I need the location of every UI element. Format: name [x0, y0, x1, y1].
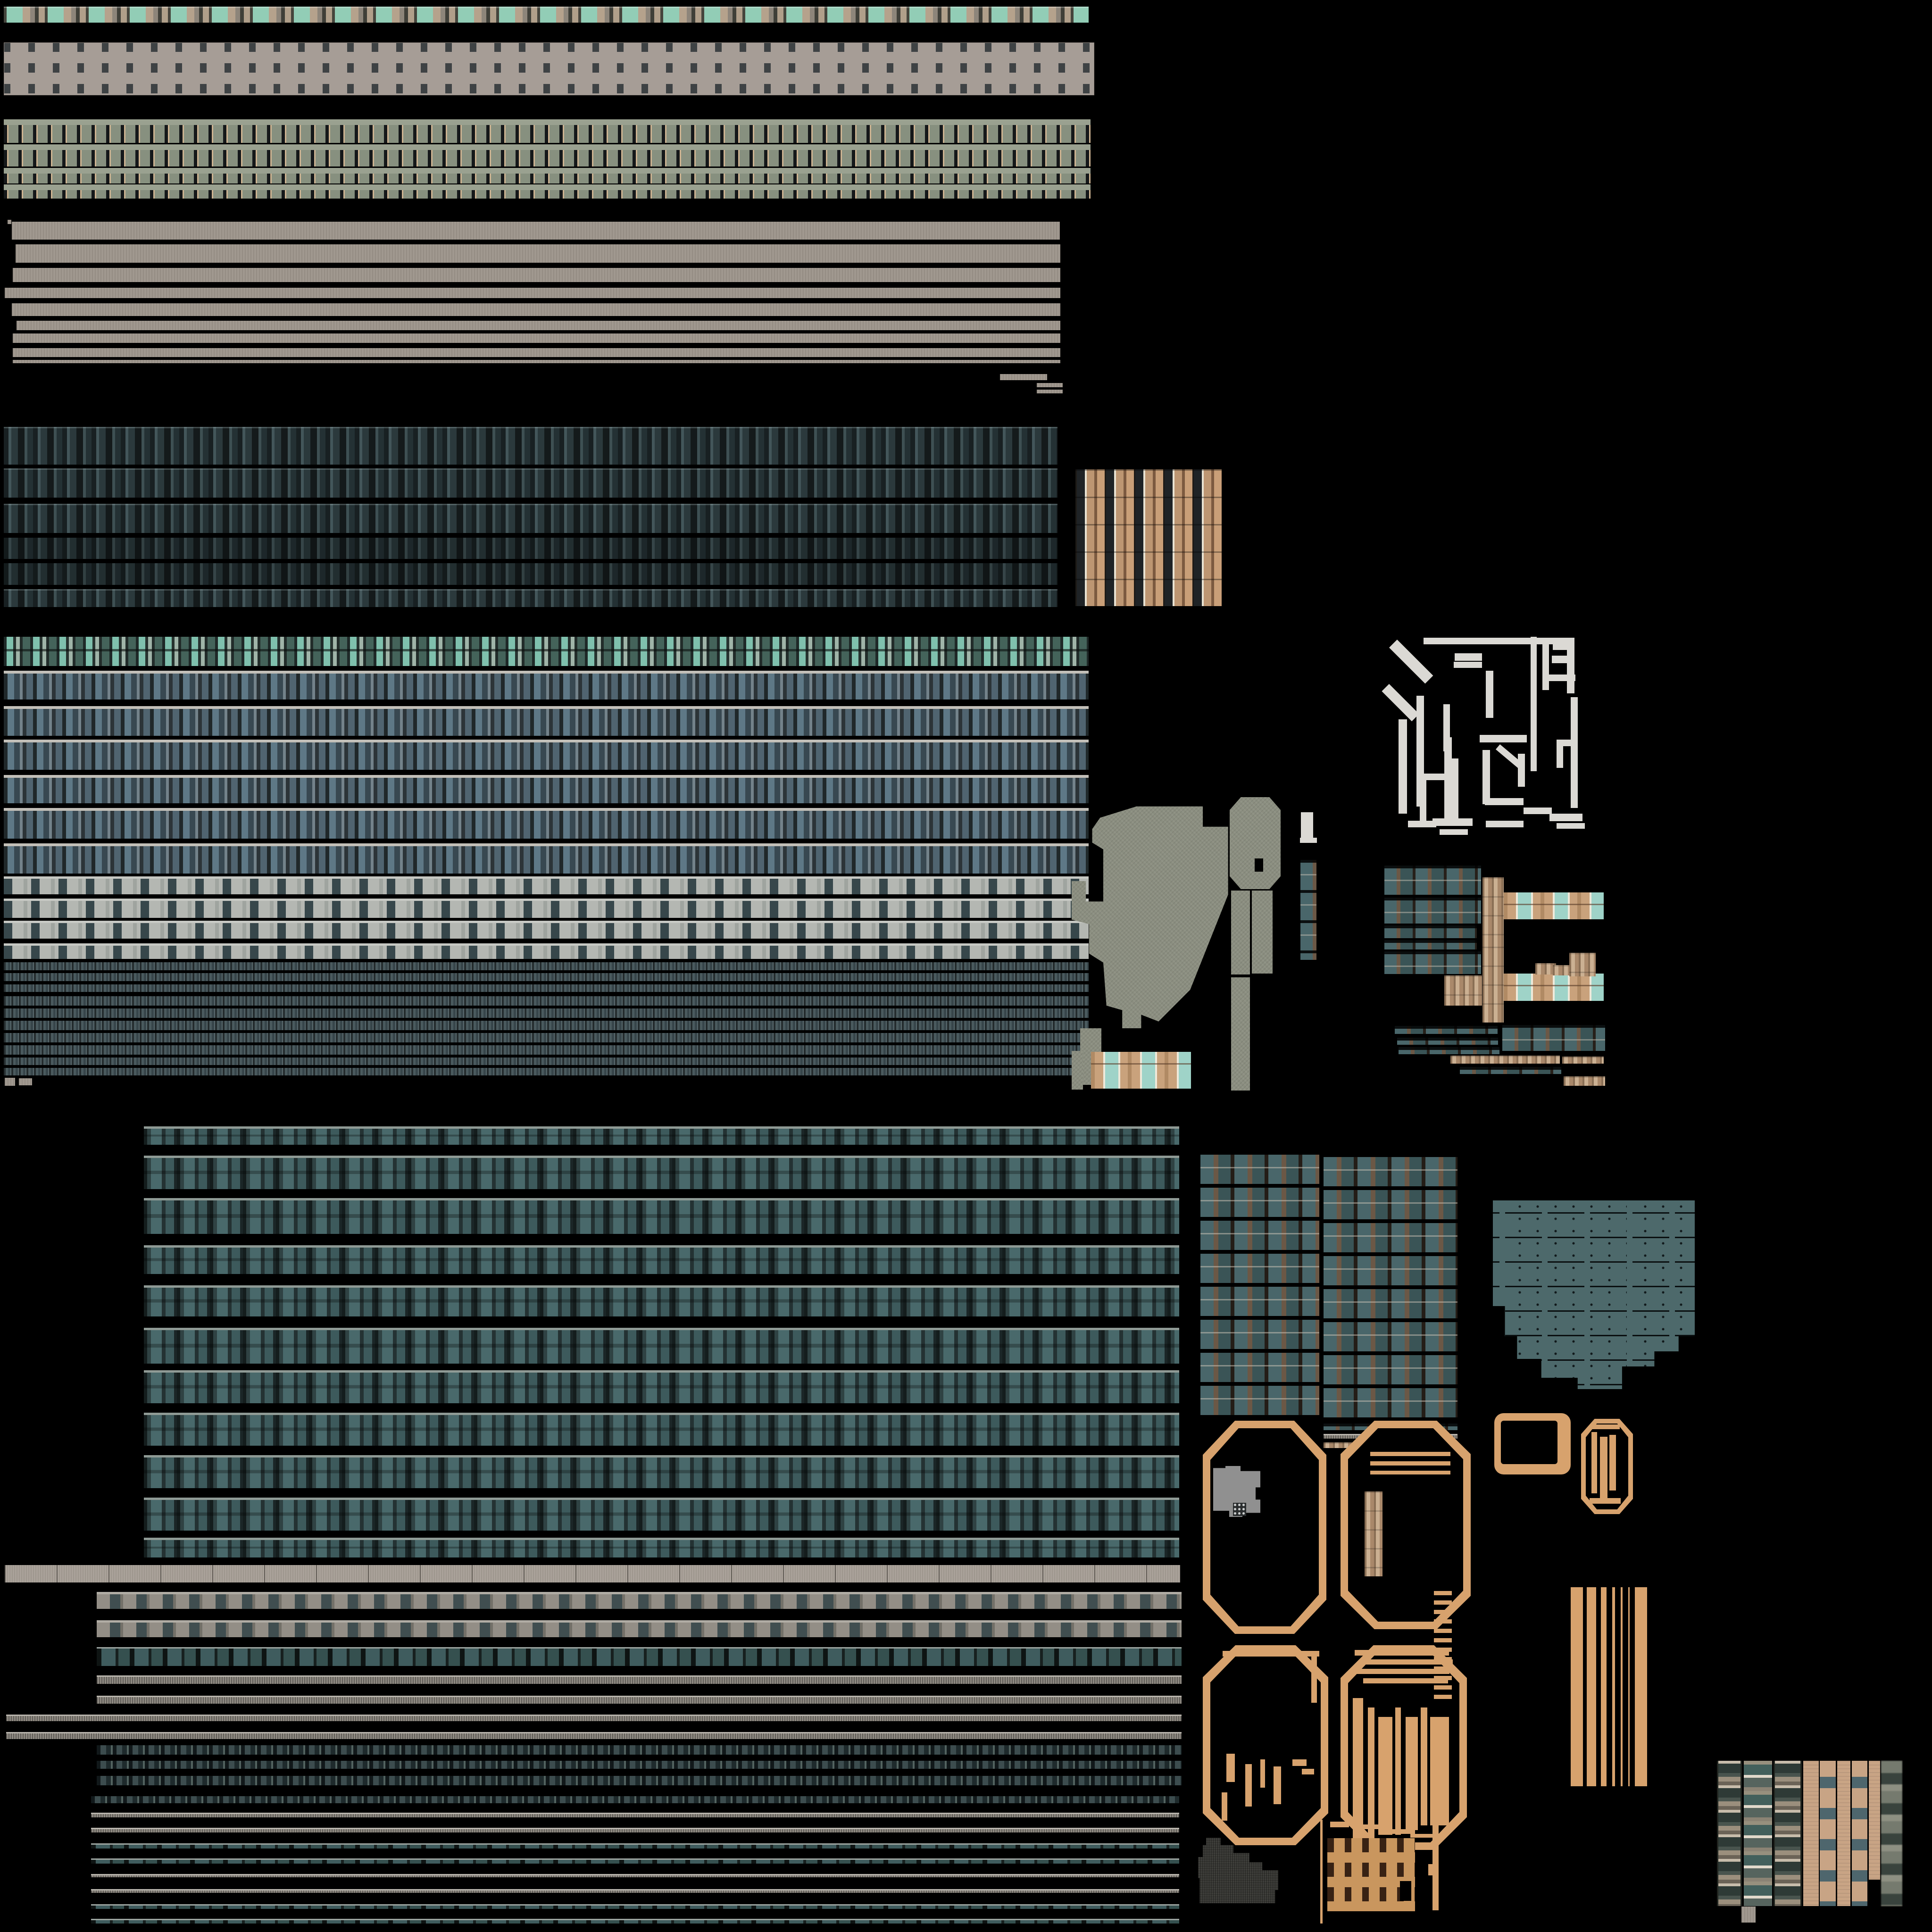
concrete-oct-hole	[1255, 858, 1263, 872]
teal-field-row-2	[144, 1156, 1179, 1189]
white-long-vert	[1531, 637, 1537, 771]
light-row-2	[4, 899, 1089, 918]
white-b-2	[1432, 818, 1473, 826]
white-b-6	[1549, 814, 1582, 821]
tan-bit-1	[1330, 1822, 1349, 1827]
tan-thin-nub	[1428, 1864, 1432, 1875]
tan-column-1	[1482, 877, 1504, 947]
gray-bar-2	[16, 244, 1060, 263]
sage-band-2	[4, 144, 1091, 167]
teal-field-row-11	[144, 1538, 1179, 1557]
gray-dot	[8, 220, 11, 224]
oct3-mark-5	[1222, 1792, 1227, 1821]
fine-row-6	[4, 1021, 1089, 1030]
rail-5	[91, 1813, 1179, 1817]
concrete-small-bar	[1072, 1051, 1083, 1090]
br-strip-win-1	[1820, 1761, 1836, 1906]
gray-bar-5	[12, 303, 1060, 316]
tile-cluster-4	[1384, 940, 1477, 949]
tile-cluster-5	[1384, 951, 1481, 974]
teal-field-row-1	[144, 1126, 1179, 1145]
tan-column-2	[1482, 947, 1504, 1023]
teal-dot-block	[1493, 1200, 1695, 1389]
light-row-4	[4, 943, 1089, 959]
fine-row-9	[4, 1058, 1089, 1065]
tan-bit-2	[1356, 1824, 1380, 1829]
concrete-bar-3	[1231, 977, 1250, 1091]
white-diag-2	[1382, 684, 1419, 721]
white-l-1	[1420, 774, 1453, 780]
sprite-sheet-canvas	[0, 0, 1932, 1932]
tile-cluster-3	[1384, 925, 1477, 938]
fine-row-3	[4, 984, 1089, 992]
greige-wall-block	[4, 42, 1094, 95]
oct4-bar-5	[1406, 1717, 1418, 1830]
oct3-mark-1	[1226, 1754, 1235, 1782]
tan-block-1	[1444, 975, 1482, 1006]
br-strip-blur	[1881, 1761, 1902, 1906]
oct4-bar-7	[1430, 1717, 1449, 1825]
gray-chip-2	[19, 1078, 32, 1085]
gray-bar-6	[17, 321, 1060, 330]
oct3-top-line	[1223, 1651, 1319, 1657]
white-pent-bottom	[1485, 798, 1524, 805]
white-vert-2	[1399, 719, 1407, 814]
oct2-inner-bar	[1365, 1491, 1382, 1576]
charcoal-blob	[1198, 1837, 1278, 1903]
fine-row-5	[4, 1008, 1089, 1018]
rail-8	[91, 1889, 1179, 1893]
gray-bar-4	[5, 288, 1060, 298]
tan-window-strip-left	[1091, 1052, 1191, 1089]
white-bar-2	[1454, 662, 1482, 668]
fine-row-8	[4, 1045, 1089, 1055]
dark-row-4	[91, 1796, 1179, 1803]
light-row-1	[4, 876, 1089, 894]
teal-field-row-3	[144, 1198, 1179, 1234]
tile-win-strip	[1502, 1025, 1605, 1051]
slate-row-6	[4, 843, 1089, 874]
tan-bit-3	[1387, 1829, 1415, 1834]
teal-field-row-9	[144, 1455, 1179, 1488]
tile-thin-2	[1397, 1038, 1498, 1045]
gray-frag-1	[1000, 374, 1047, 380]
teal-field-row-10	[144, 1498, 1179, 1531]
gray-bar-8	[13, 348, 1060, 357]
concrete-bar-2	[1252, 891, 1273, 974]
oct3-mark-3	[1260, 1759, 1265, 1788]
fine-row-10	[4, 1068, 1089, 1075]
br-strip-brick-3	[1869, 1761, 1880, 1880]
white-frag-2	[1300, 838, 1317, 843]
br-strip-brick-1	[1803, 1761, 1819, 1906]
br-strip-balcony-1	[1717, 1761, 1742, 1906]
gray-bar-7	[13, 333, 1060, 343]
gray-bar-3	[13, 268, 1060, 282]
tile-thin-3	[1399, 1047, 1499, 1054]
oct3-mark-7	[1302, 1769, 1314, 1774]
br-strip-win-2	[1852, 1761, 1867, 1906]
white-bar-1	[1455, 653, 1482, 661]
oct4-bar-6	[1421, 1707, 1427, 1825]
oct3-mark-4	[1274, 1766, 1281, 1804]
fin-row-5	[4, 563, 1058, 585]
concrete-bigpoly	[1072, 802, 1230, 1028]
fin-row-3	[4, 504, 1058, 533]
teal-field-row-4	[144, 1245, 1179, 1274]
mint-window-strip	[4, 7, 1089, 23]
tile-cluster-1	[1384, 866, 1481, 895]
white-vert-right	[1571, 697, 1578, 808]
oct-small-bar-2	[1600, 1437, 1607, 1503]
oct4-bar-1	[1353, 1698, 1363, 1840]
oct-small-bar-1	[1591, 1432, 1597, 1493]
white-b-4	[1486, 821, 1524, 827]
oct3-right-line	[1311, 1651, 1317, 1703]
tile-thin-4	[1460, 1067, 1561, 1074]
white-cl-1	[1542, 641, 1549, 690]
white-cl-5	[1542, 675, 1575, 681]
teal-door-row-1	[97, 1647, 1182, 1666]
white-hbar-mid	[1480, 735, 1527, 742]
teal-field-row-8	[144, 1413, 1179, 1446]
tan-bar-low-1	[1450, 1056, 1560, 1064]
teal-field-row-5	[144, 1285, 1179, 1316]
fine-row-4	[4, 996, 1089, 1006]
white-vert-6	[1486, 671, 1493, 718]
tan-bar-low-3	[1564, 1076, 1605, 1086]
octagon-outline-1	[1203, 1421, 1326, 1634]
fine-row-7	[4, 1033, 1089, 1042]
oct3-mark-2	[1245, 1764, 1252, 1807]
white-top-bar	[1424, 638, 1574, 644]
oct-small-bottom	[1590, 1498, 1621, 1504]
teal-small-row	[4, 637, 1089, 666]
tan-thin-line	[1320, 1820, 1323, 1924]
white-b-7	[1557, 823, 1585, 829]
sage-band-1	[4, 119, 1091, 143]
br-strip-balcony-2	[1774, 1761, 1802, 1906]
dark-window-chip	[1233, 1503, 1246, 1516]
dark-row-2	[97, 1761, 1182, 1769]
plain-rib-strip	[5, 1565, 1180, 1582]
white-vert-5	[1452, 758, 1458, 820]
oct2-top-lines	[1370, 1452, 1450, 1474]
rail-2	[97, 1696, 1182, 1704]
rail-3	[6, 1715, 1182, 1721]
white-b-3	[1440, 829, 1468, 835]
br-small-blob	[1741, 1907, 1756, 1923]
tile-cluster-2	[1384, 898, 1481, 924]
facade-strip-mid	[1300, 860, 1316, 960]
white-frag-1	[1301, 812, 1313, 841]
fine-row-1	[4, 962, 1089, 970]
facade-column-left	[1200, 1151, 1319, 1415]
fin-row-4	[4, 538, 1058, 559]
fin-row-6	[4, 589, 1058, 607]
tile-thin-1	[1395, 1026, 1498, 1034]
rail-6	[91, 1828, 1179, 1832]
teal-field-row-7	[144, 1370, 1179, 1403]
rail-1	[97, 1675, 1182, 1684]
tan-small-3	[1569, 953, 1596, 976]
white-b-1	[1408, 821, 1436, 827]
tan-rrect-hole	[1501, 1421, 1557, 1464]
concrete-octagon	[1230, 797, 1281, 889]
rail-4	[6, 1732, 1182, 1739]
dark-row-1	[97, 1745, 1182, 1755]
oct3-mark-6	[1292, 1759, 1307, 1766]
tan-bar-low-2	[1562, 1057, 1604, 1064]
slate-row-1	[4, 671, 1089, 700]
gray-balcony-2	[97, 1620, 1182, 1637]
oct4-bar-3	[1378, 1717, 1392, 1835]
white-pent-left	[1482, 750, 1490, 804]
tan-window-strip-1	[1504, 892, 1604, 919]
tan-thin-bar	[1432, 1820, 1439, 1910]
teal-door-row-2	[91, 1843, 1179, 1849]
oct-small-top	[1591, 1424, 1620, 1429]
facade-column-right	[1324, 1153, 1457, 1420]
oct-small-bar-3	[1609, 1435, 1616, 1491]
gray-frag-3	[1037, 390, 1063, 393]
tan-window-strip-2	[1504, 974, 1604, 1001]
gray-bar-9	[13, 360, 1060, 363]
teal-door-row-3	[91, 1858, 1179, 1864]
tan-lines-stack	[1434, 1591, 1452, 1699]
slate-row-5	[4, 808, 1089, 839]
teal-field-row-6	[144, 1328, 1179, 1364]
fine-row-2	[4, 973, 1089, 981]
rail-7	[91, 1874, 1179, 1877]
white-diag-1	[1389, 640, 1433, 683]
slate-row-3	[4, 740, 1089, 770]
tan-stripes-block	[1571, 1587, 1647, 1786]
door-facade-hole	[1400, 1881, 1411, 1901]
fin-row-2	[4, 468, 1058, 498]
tan-corner-tiles	[1075, 469, 1222, 606]
br-strip-ac	[1744, 1761, 1772, 1906]
light-row-3	[4, 921, 1089, 939]
oct4-bar-2	[1368, 1707, 1374, 1840]
teal-door-row-4	[91, 1904, 1179, 1909]
white-pent-right	[1518, 754, 1525, 787]
white-hook-2	[1557, 740, 1563, 768]
gray-chip-1	[5, 1078, 15, 1086]
sage-band-3	[4, 168, 1091, 183]
white-cl-4	[1567, 641, 1574, 693]
gray-bar-1	[12, 222, 1060, 240]
slate-row-4	[4, 775, 1089, 803]
white-b-5	[1524, 808, 1552, 814]
dark-row-3	[97, 1776, 1182, 1785]
sage-band-4	[4, 184, 1091, 199]
gray-balcony-1	[97, 1592, 1182, 1609]
oct4-bar-4	[1395, 1707, 1401, 1835]
gray-frag-2	[1037, 383, 1063, 387]
tan-small-2	[1553, 965, 1572, 975]
slate-row-2	[4, 706, 1089, 736]
fin-row-1	[4, 427, 1058, 465]
teal-door-row-5	[91, 1919, 1179, 1924]
octagon-outline-1-interior	[1210, 1428, 1319, 1626]
br-strip-brick-2	[1837, 1761, 1850, 1906]
white-l-2	[1420, 780, 1426, 823]
concrete-bar-1	[1231, 891, 1250, 974]
